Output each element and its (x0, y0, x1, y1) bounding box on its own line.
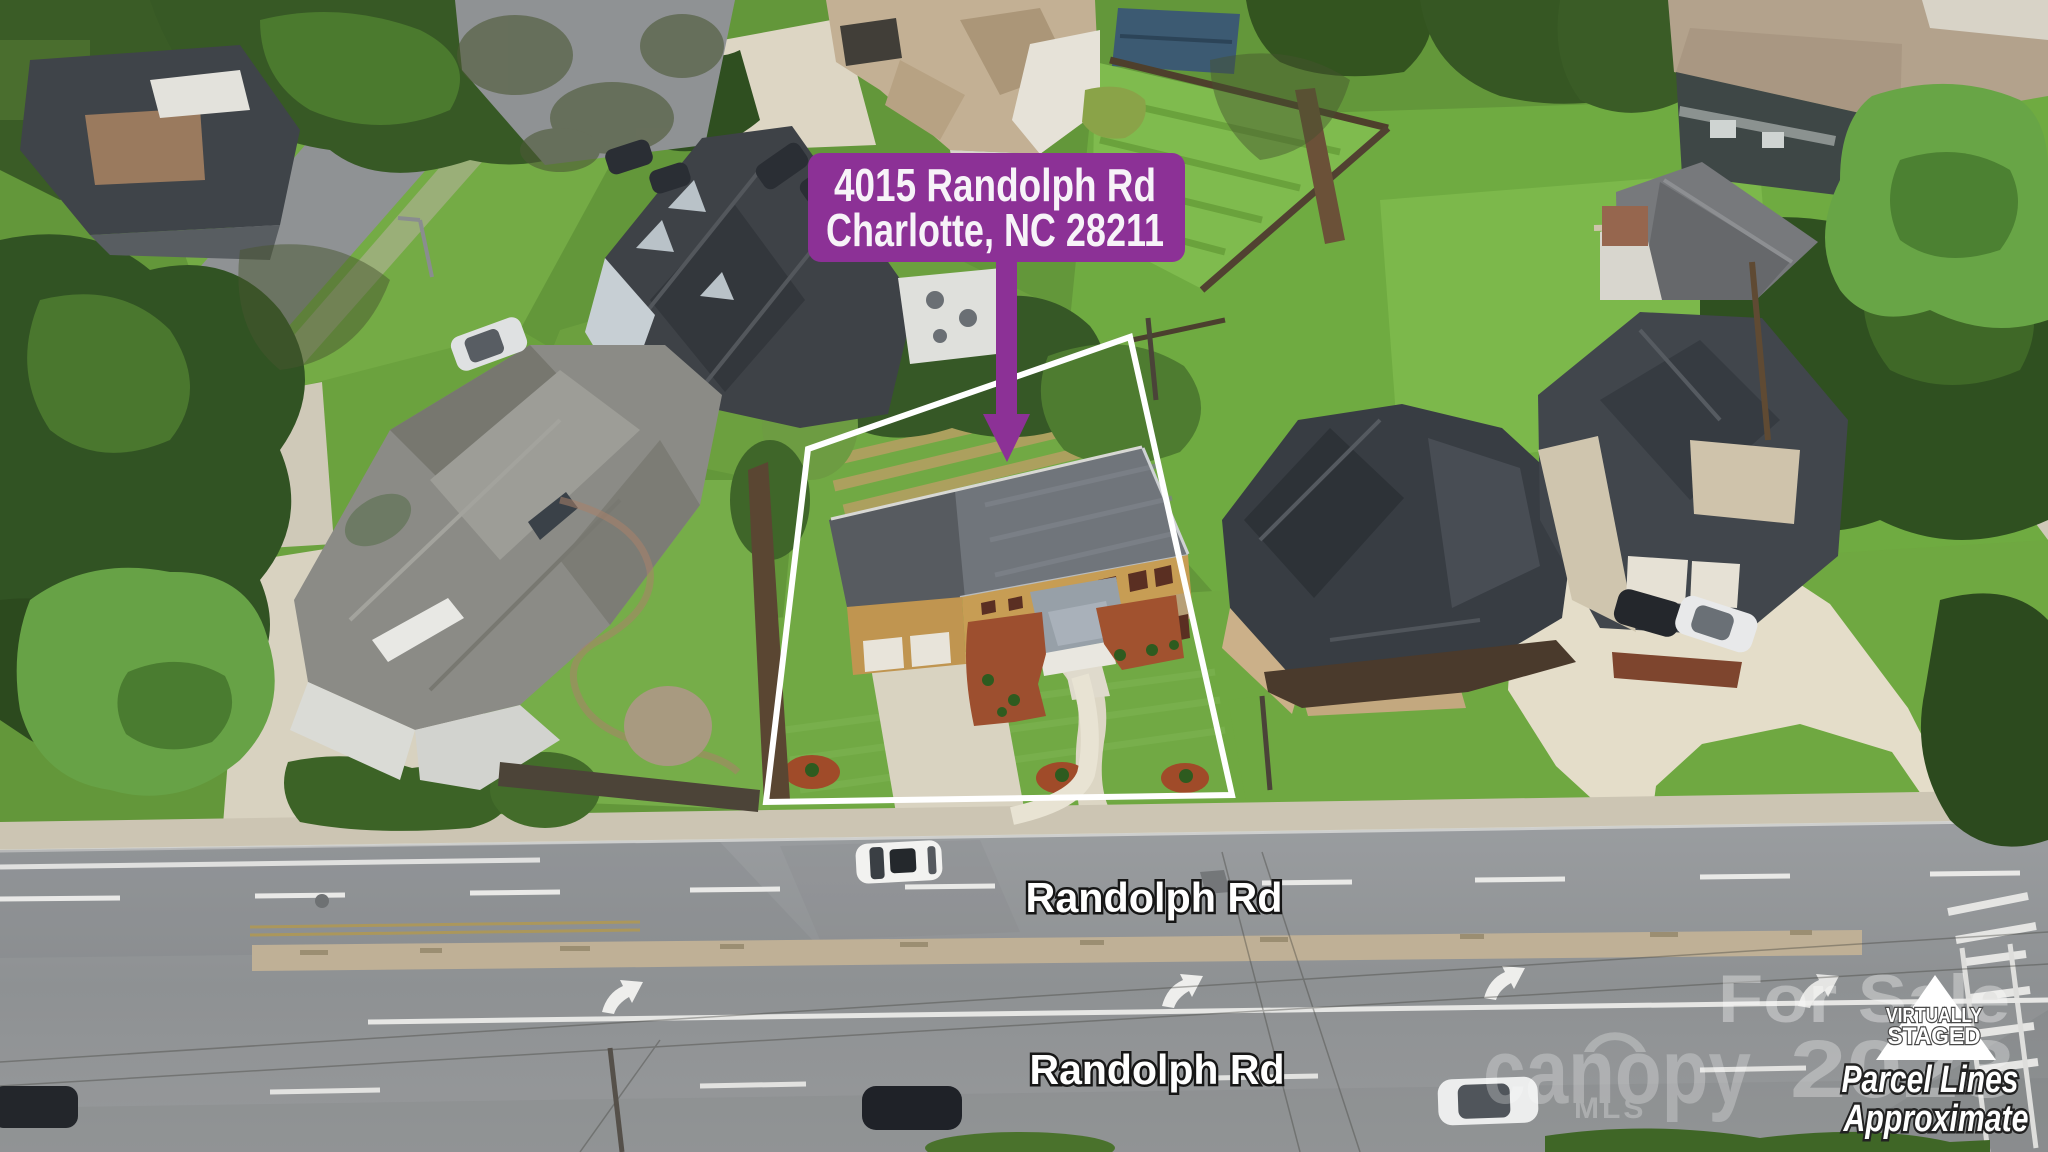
svg-text:Randolph Rd: Randolph Rd (1026, 874, 1283, 921)
svg-text:Approximate: Approximate (1843, 1098, 2029, 1140)
svg-text:Parcel Lines: Parcel Lines (1842, 1059, 2019, 1101)
svg-text:Charlotte, NC 28211: Charlotte, NC 28211 (826, 204, 1164, 256)
svg-text:MLS: MLS (1574, 1092, 1646, 1125)
svg-text:Randolph Rd: Randolph Rd (1030, 1046, 1285, 1093)
svg-text:STAGED: STAGED (1888, 1023, 1981, 1050)
